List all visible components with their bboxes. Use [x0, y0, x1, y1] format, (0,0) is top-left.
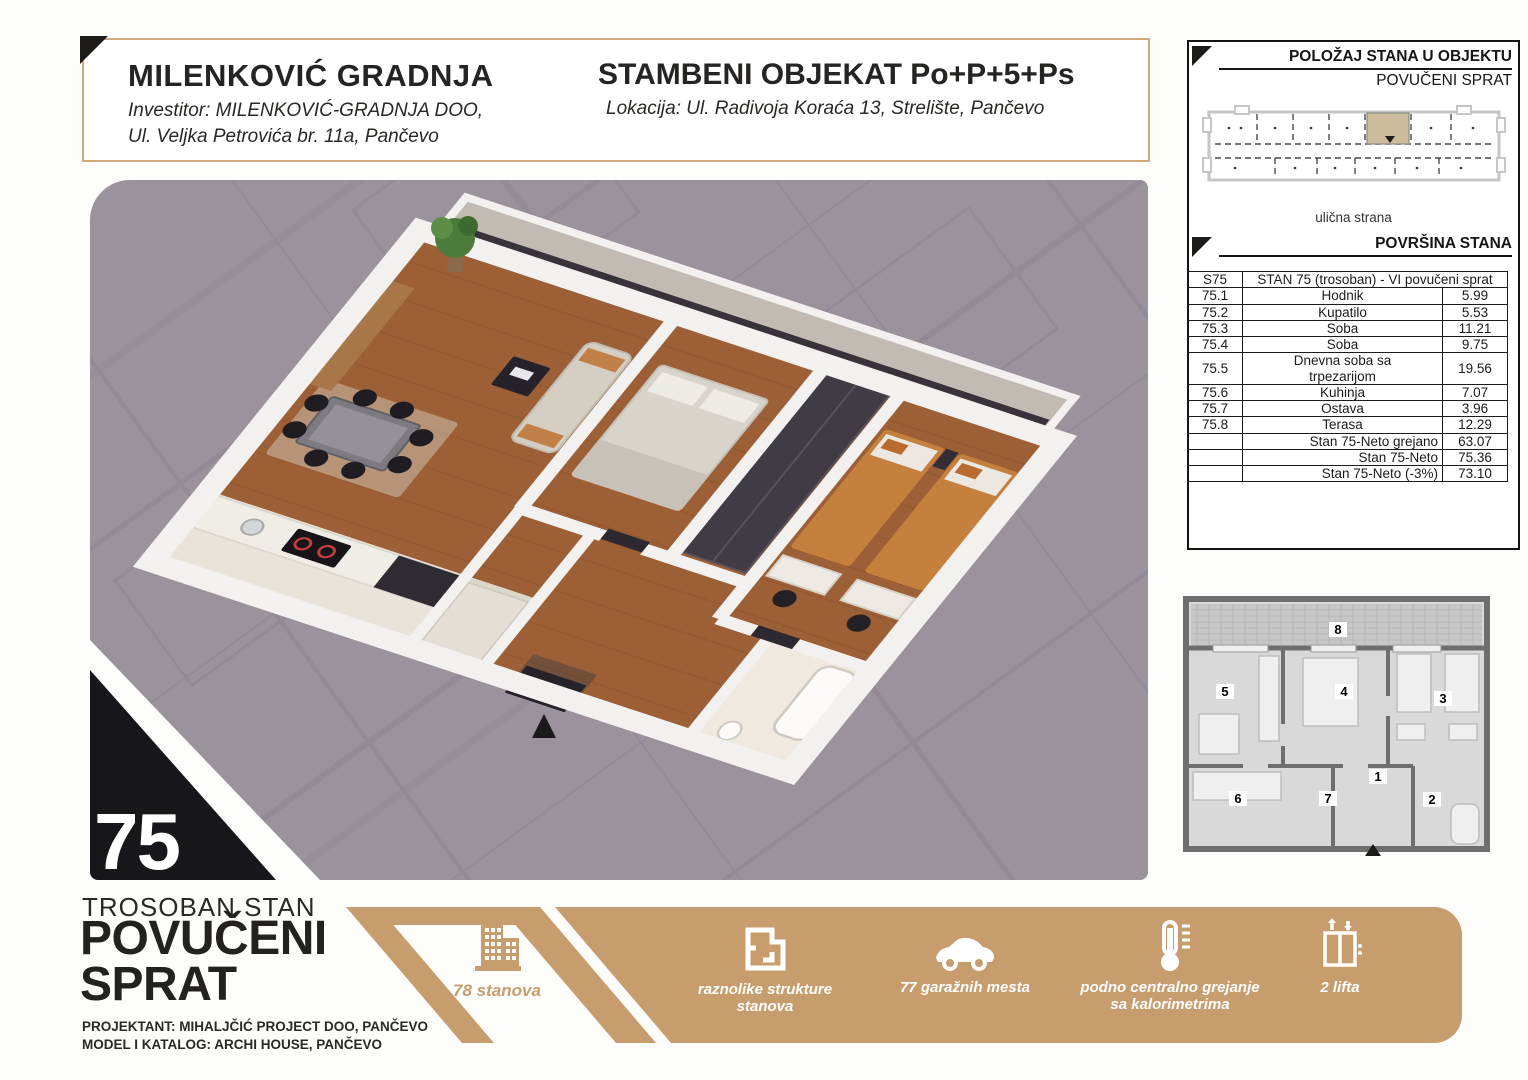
- row-name: Soba: [1243, 320, 1443, 336]
- feature-structures: raznolike strukture stanova: [665, 922, 865, 1016]
- row-value: 9.75: [1443, 337, 1508, 353]
- area-table-body: 75.1Hodnik5.9975.2Kupatilo5.5375.3Soba11…: [1188, 288, 1508, 482]
- apartment-floor: POVUČENI SPRAT: [80, 916, 327, 1007]
- table-row: 75.5Dnevna soba sa trpezarijom19.56: [1188, 353, 1508, 385]
- credits-line2: MODEL I KATALOG: ARCHI HOUSE, PANČEVO: [82, 1036, 428, 1054]
- render-3d-area: [90, 180, 1148, 880]
- row-value: 11.21: [1443, 320, 1508, 336]
- thermometer-icon: [1142, 918, 1198, 974]
- elevator-icon: [1312, 918, 1368, 974]
- table-row: 75.1Hodnik5.99: [1188, 288, 1508, 304]
- table-row: 75.6Kuhinja7.07: [1188, 384, 1508, 400]
- table-row: Stan 75-Neto (-3%)73.10: [1188, 466, 1508, 482]
- unit-code: S75: [1188, 272, 1243, 288]
- row-value: 3.96: [1443, 401, 1508, 417]
- table-row: Stan 75-Neto75.36: [1188, 449, 1508, 465]
- corner-marker-icon: [80, 36, 108, 64]
- table-row: 75.8Terasa12.29: [1188, 417, 1508, 433]
- row-name: Stan 75-Neto grejano: [1243, 433, 1443, 449]
- row-id: [1188, 466, 1243, 482]
- entrance-marker-icon: [532, 714, 556, 738]
- floor-line1: POVUČENI: [80, 916, 327, 962]
- row-id: [1188, 433, 1243, 449]
- apartment-floorplan-3d: [133, 189, 1089, 784]
- row-id: 75.3: [1188, 320, 1243, 336]
- row-name: Stan 75-Neto: [1243, 449, 1443, 465]
- room-number: 3: [1439, 691, 1446, 706]
- brand-investor: Investitor: MILENKOVIĆ-GRADNJA DOO, Ul. …: [128, 98, 483, 149]
- room-number: 6: [1234, 791, 1241, 806]
- room-number: 8: [1334, 622, 1341, 637]
- brochure-page: { "colors":{"accent":"#c89d6e","panel_bo…: [0, 0, 1528, 1080]
- floorplan-2d: 8 5 4 3 1 6 7 2: [1183, 596, 1490, 858]
- position-area-panel: POLOŽAJ STANA U OBJEKTU POVUČENI SPRAT: [1187, 40, 1520, 550]
- room-number: 4: [1340, 684, 1348, 699]
- position-panel-subtitle: POVUČENI SPRAT: [1219, 72, 1512, 90]
- row-name: Terasa: [1243, 417, 1443, 433]
- table-row: 75.2Kupatilo5.53: [1188, 304, 1508, 320]
- row-name: Kuhinja: [1243, 384, 1443, 400]
- feature-label: 77 garažnih mesta: [875, 979, 1055, 996]
- street-side-label: ulična strana: [1189, 210, 1518, 225]
- credits-line1: PROJEKTANT: MIHALJČIĆ PROJECT DOO, PANČE…: [82, 1018, 428, 1036]
- row-id: 75.8: [1188, 417, 1243, 433]
- floor-line2: SPRAT: [80, 962, 327, 1008]
- room-number: 1: [1374, 769, 1381, 784]
- building-icon: [469, 920, 525, 976]
- apartment-3d-render: [90, 180, 1148, 880]
- room-number: 7: [1324, 791, 1331, 806]
- row-name: Kupatilo: [1243, 304, 1443, 320]
- feature-label: 78 stanova: [427, 981, 567, 1001]
- investor-line1: Investitor: MILENKOVIĆ-GRADNJA DOO,: [128, 98, 483, 124]
- row-value: 73.10: [1443, 466, 1508, 482]
- unit-description: STAN 75 (trosoban) - VI povučeni sprat: [1243, 272, 1508, 288]
- feature-label: raznolike strukture stanova: [665, 981, 865, 1016]
- row-id: 75.7: [1188, 401, 1243, 417]
- room-number: 2: [1428, 792, 1435, 807]
- row-id: 75.2: [1188, 304, 1243, 320]
- car-icon: [932, 934, 998, 974]
- row-name: Hodnik: [1243, 288, 1443, 304]
- feature-garage: 77 garažnih mesta: [875, 934, 1055, 996]
- row-value: 19.56: [1443, 353, 1508, 385]
- row-name: Soba: [1243, 337, 1443, 353]
- room-number: 5: [1221, 684, 1228, 699]
- area-panel-title: POVRŠINA STANA: [1219, 235, 1512, 257]
- row-value: 5.53: [1443, 304, 1508, 320]
- row-name: Stan 75-Neto (-3%): [1243, 466, 1443, 482]
- row-value: 7.07: [1443, 384, 1508, 400]
- feature-label: podno centralno grejanje sa kalorimetrim…: [1055, 979, 1285, 1014]
- table-header-row: S75 STAN 75 (trosoban) - VI povučeni spr…: [1188, 272, 1508, 288]
- area-table: S75 STAN 75 (trosoban) - VI povučeni spr…: [1187, 271, 1508, 482]
- credits: PROJEKTANT: MIHALJČIĆ PROJECT DOO, PANČE…: [82, 1018, 428, 1054]
- apartment-number: 75: [94, 796, 179, 888]
- row-name: Ostava: [1243, 401, 1443, 417]
- row-value: 12.29: [1443, 417, 1508, 433]
- feature-apartments: 78 stanova: [427, 920, 567, 1001]
- row-name: Dnevna soba sa trpezarijom: [1243, 353, 1443, 385]
- row-value: 5.99: [1443, 288, 1508, 304]
- investor-line2: Ul. Veljka Petrovića br. 11a, Pančevo: [128, 124, 483, 150]
- row-id: [1188, 449, 1243, 465]
- row-id: 75.5: [1188, 353, 1243, 385]
- project-title: STAMBENI OBJEKAT Po+P+5+Ps: [598, 58, 1075, 92]
- table-row: 75.7Ostava3.96: [1188, 401, 1508, 417]
- feature-elevators: 2 lifta: [1285, 918, 1395, 996]
- project-location: Lokacija: Ul. Radivoja Koraća 13, Streli…: [606, 98, 1044, 120]
- table-row: Stan 75-Neto grejano63.07: [1188, 433, 1508, 449]
- table-row: 75.3Soba11.21: [1188, 320, 1508, 336]
- feature-label: 2 lifta: [1285, 979, 1395, 996]
- table-row: 75.4Soba9.75: [1188, 337, 1508, 353]
- corner-marker-icon: [1192, 237, 1212, 257]
- row-value: 63.07: [1443, 433, 1508, 449]
- feature-heating: podno centralno grejanje sa kalorimetrim…: [1055, 918, 1285, 1014]
- floorplan-icon: [738, 922, 792, 976]
- row-id: 75.4: [1188, 337, 1243, 353]
- row-id: 75.1: [1188, 288, 1243, 304]
- corner-marker-icon: [1192, 46, 1212, 66]
- position-panel-title: POLOŽAJ STANA U OBJEKTU: [1219, 48, 1512, 70]
- building-position-plan: [1195, 98, 1512, 206]
- brand-title: MILENKOVIĆ GRADNJA: [128, 58, 494, 94]
- row-id: 75.6: [1188, 384, 1243, 400]
- row-value: 75.36: [1443, 449, 1508, 465]
